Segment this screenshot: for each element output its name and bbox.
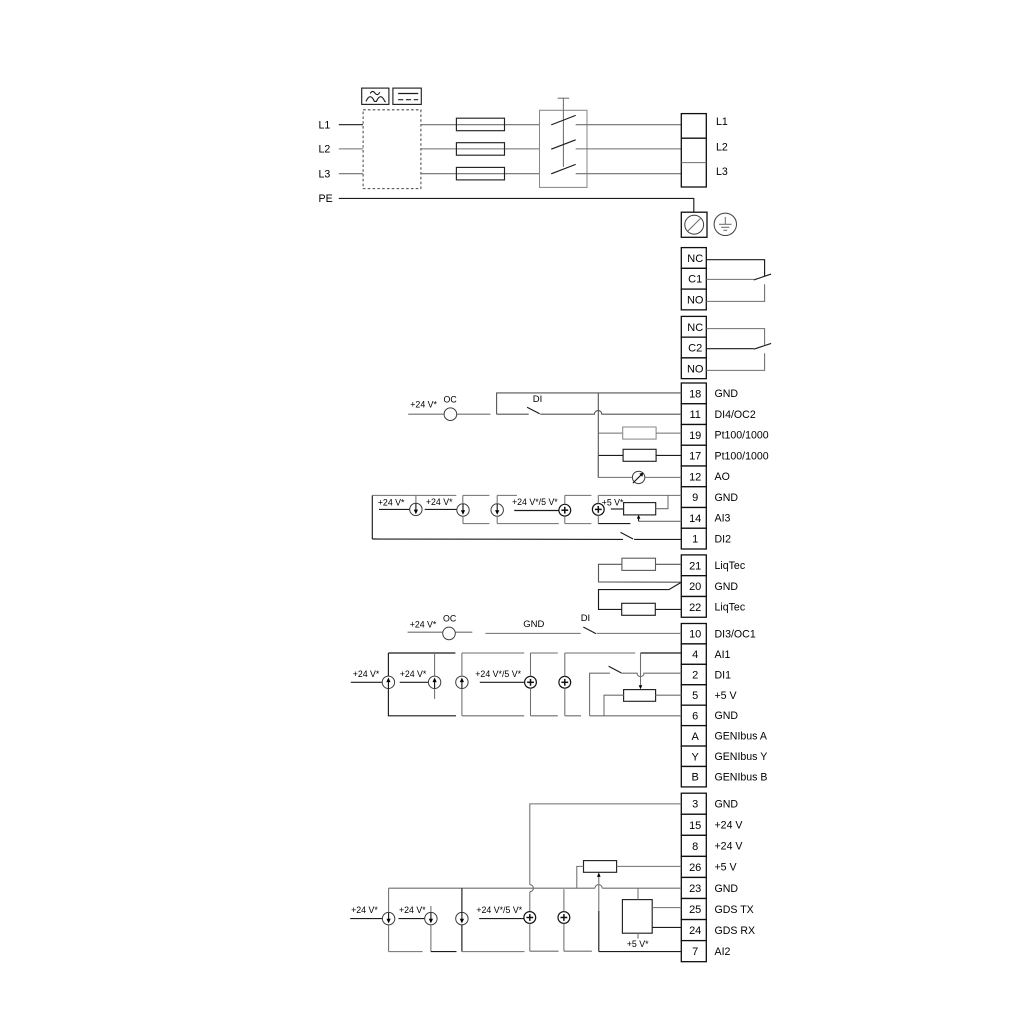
svg-text:NO: NO [687,363,704,375]
svg-text:GND: GND [715,388,739,400]
svg-text:OC: OC [444,395,458,405]
svg-text:22: 22 [689,602,701,614]
svg-text:DI4/OC2: DI4/OC2 [715,409,756,421]
svg-text:GENIbus Y: GENIbus Y [715,751,768,763]
svg-text:Pt100/1000: Pt100/1000 [715,430,769,442]
svg-text:20: 20 [689,581,701,593]
svg-text:+24 V*: +24 V* [378,497,405,507]
svg-text:6: 6 [692,710,698,722]
svg-text:+5 V*: +5 V* [627,939,649,949]
svg-text:+24 V: +24 V [715,841,744,853]
svg-text:+24 V*: +24 V* [353,669,380,679]
svg-text:24: 24 [689,925,701,937]
svg-text:15: 15 [689,820,701,832]
svg-text:NC: NC [687,253,703,265]
svg-text:+24 V*/5 V*: +24 V*/5 V* [476,905,522,915]
svg-text:10: 10 [689,629,701,641]
svg-text:+24 V: +24 V [715,820,744,832]
svg-text:9: 9 [692,492,698,504]
svg-text:DI2: DI2 [715,533,732,545]
svg-text:+24 V*: +24 V* [351,905,378,915]
svg-text:23: 23 [689,883,701,895]
svg-text:17: 17 [689,451,701,463]
svg-text:GND: GND [715,799,739,811]
svg-text:L3: L3 [319,168,331,180]
svg-text:DI: DI [533,394,543,405]
svg-text:NC: NC [687,322,703,334]
svg-text:L2: L2 [716,141,728,153]
svg-text:GENIbus B: GENIbus B [715,771,768,783]
svg-text:C2: C2 [688,343,702,355]
svg-text:3: 3 [692,799,698,811]
svg-text:1: 1 [692,534,698,546]
svg-text:18: 18 [689,388,701,400]
svg-text:+24 V*: +24 V* [426,497,453,507]
svg-text:L2: L2 [319,144,331,156]
svg-text:LiqTec: LiqTec [715,602,746,614]
svg-text:NO: NO [687,294,704,306]
svg-text:GDS TX: GDS TX [715,904,754,916]
svg-text:+24 V*: +24 V* [399,905,426,915]
svg-text:+5 V: +5 V [715,690,738,702]
svg-text:L1: L1 [716,116,728,128]
svg-text:Y: Y [692,751,700,763]
svg-text:14: 14 [689,513,701,525]
svg-text:GDS RX: GDS RX [715,925,756,937]
svg-text:19: 19 [689,430,701,442]
svg-text:+24 V*/5 V*: +24 V*/5 V* [475,669,521,679]
svg-text:25: 25 [689,904,701,916]
svg-text:DI: DI [581,613,591,624]
svg-text:GENIbus A: GENIbus A [715,731,768,743]
svg-text:GND: GND [523,619,544,630]
svg-text:L3: L3 [716,166,728,178]
svg-text:Pt100/1000: Pt100/1000 [715,450,769,462]
svg-text:2: 2 [692,670,698,682]
svg-text:+5 V*: +5 V* [602,498,624,508]
svg-text:5: 5 [692,690,698,702]
svg-text:11: 11 [689,409,700,421]
svg-text:+24 V*: +24 V* [400,669,427,679]
svg-text:GND: GND [715,581,739,593]
svg-text:LiqTec: LiqTec [715,560,746,572]
svg-text:B: B [692,772,699,784]
svg-text:7: 7 [692,946,698,958]
svg-text:AI2: AI2 [715,946,731,958]
svg-text:GND: GND [715,710,739,722]
svg-text:AI3: AI3 [715,513,731,525]
svg-text:26: 26 [689,862,701,874]
svg-text:21: 21 [689,560,701,572]
svg-text:+24 V*: +24 V* [410,399,437,409]
svg-text:AI1: AI1 [715,649,731,661]
svg-text:+24 V*/5 V*: +24 V*/5 V* [512,497,558,507]
svg-text:A: A [692,731,700,743]
svg-text:L1: L1 [319,119,331,131]
svg-text:+24 V*: +24 V* [410,620,437,630]
svg-text:GND: GND [715,883,739,895]
svg-text:+5 V: +5 V [715,862,738,874]
svg-text:GND: GND [715,492,739,504]
svg-text:8: 8 [692,841,698,853]
svg-text:AO: AO [715,471,730,483]
svg-text:12: 12 [689,471,701,483]
svg-text:OC: OC [443,614,457,624]
svg-text:PE: PE [319,193,333,205]
svg-text:C1: C1 [688,274,702,286]
svg-text:DI3/OC1: DI3/OC1 [715,629,756,641]
svg-text:DI1: DI1 [715,669,732,681]
svg-text:4: 4 [692,649,698,661]
